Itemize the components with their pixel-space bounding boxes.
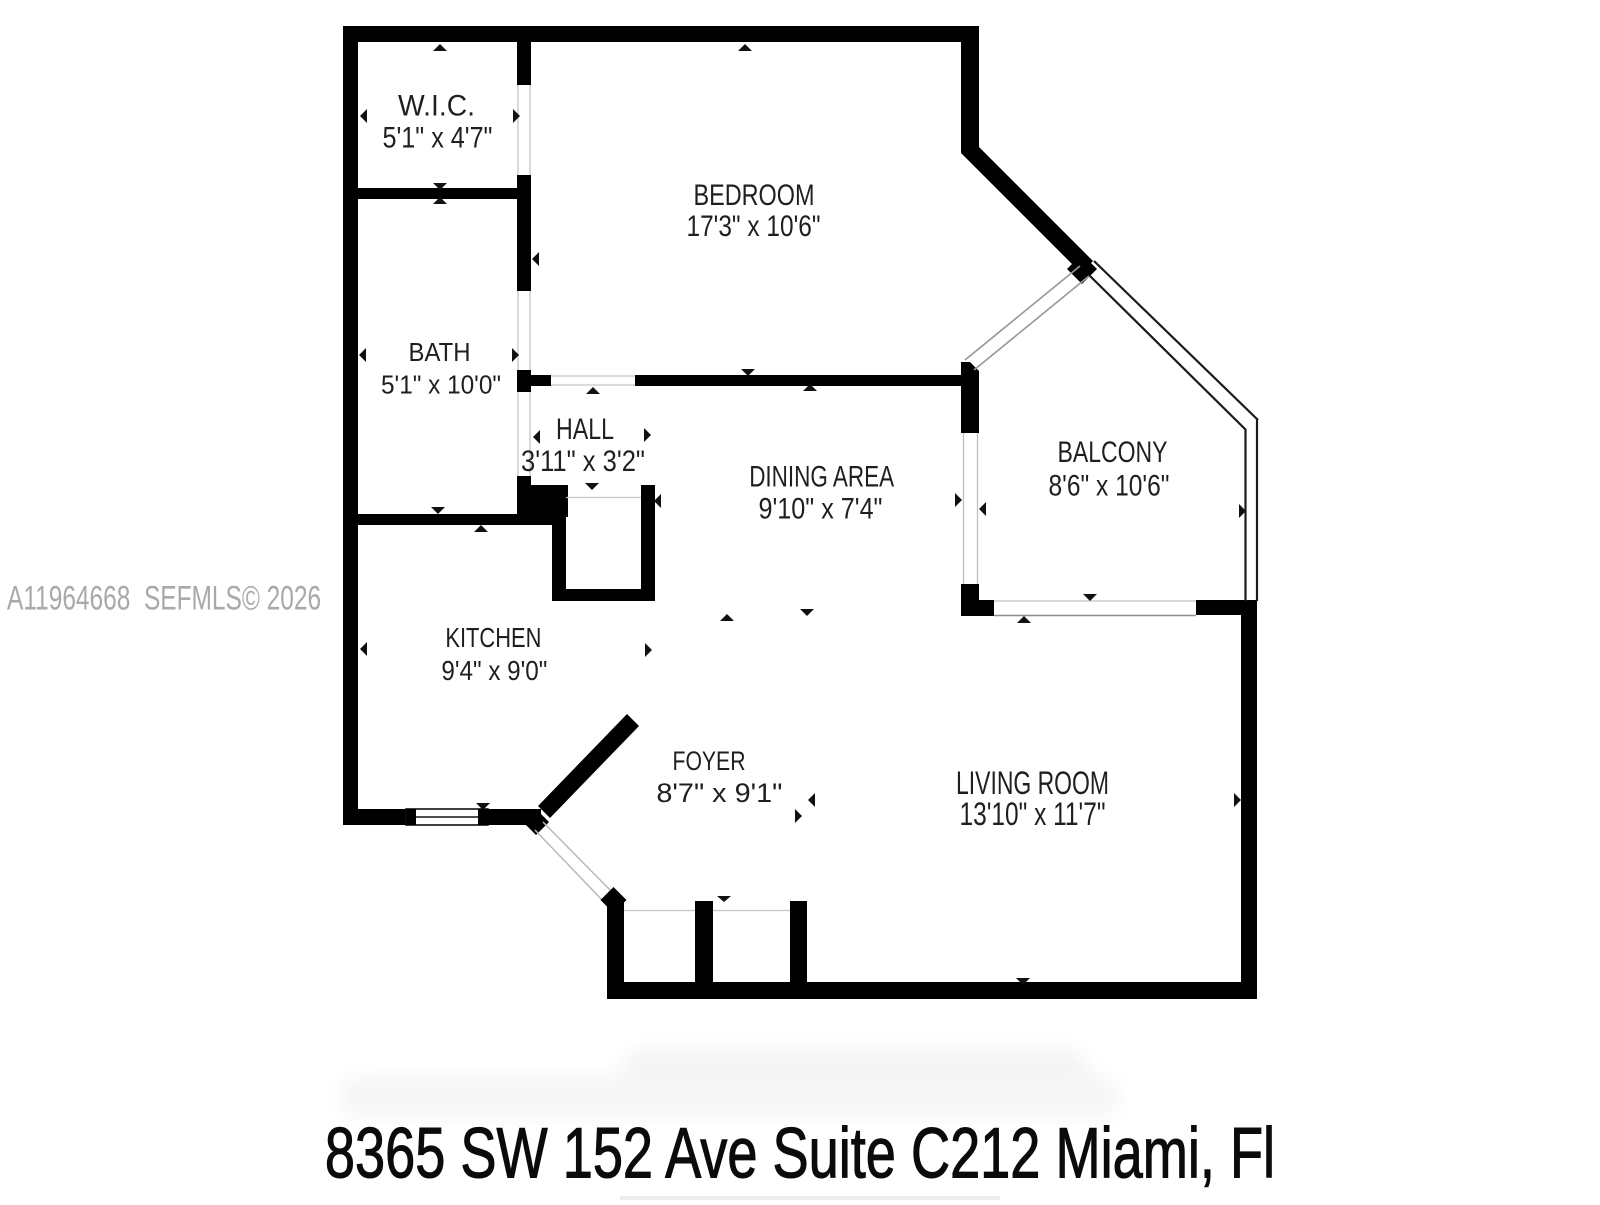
svg-text:13'10" x 11'7": 13'10" x 11'7" bbox=[960, 796, 1106, 832]
svg-text:8'7" x 9'1": 8'7" x 9'1" bbox=[656, 778, 782, 808]
svg-text:BALCONY: BALCONY bbox=[1058, 436, 1168, 469]
svg-text:9'4" x 9'0": 9'4" x 9'0" bbox=[441, 655, 547, 686]
svg-text:HALL: HALL bbox=[556, 413, 614, 446]
svg-text:W.I.C.: W.I.C. bbox=[398, 90, 475, 123]
svg-text:5'1" x 10'0": 5'1" x 10'0" bbox=[381, 372, 501, 400]
svg-text:BATH: BATH bbox=[409, 339, 471, 367]
svg-text:8365 SW 152 Ave Suite C212 Mia: 8365 SW 152 Ave Suite C212 Miami, Fl bbox=[325, 1115, 1275, 1194]
svg-text:17'3" x 10'6": 17'3" x 10'6" bbox=[687, 210, 821, 243]
svg-text:8'6" x 10'6": 8'6" x 10'6" bbox=[1049, 470, 1170, 503]
svg-text:A11964668 SEFMLS© 2026: A11964668 SEFMLS© 2026 bbox=[7, 580, 321, 618]
svg-text:KITCHEN: KITCHEN bbox=[445, 622, 541, 653]
svg-text:DINING AREA: DINING AREA bbox=[749, 461, 894, 494]
svg-text:BEDROOM: BEDROOM bbox=[694, 179, 815, 212]
svg-text:3'11" x 3'2": 3'11" x 3'2" bbox=[521, 445, 645, 478]
svg-text:FOYER: FOYER bbox=[673, 746, 746, 776]
svg-text:5'1" x 4'7": 5'1" x 4'7" bbox=[383, 122, 493, 155]
svg-text:9'10" x 7'4": 9'10" x 7'4" bbox=[759, 493, 883, 526]
